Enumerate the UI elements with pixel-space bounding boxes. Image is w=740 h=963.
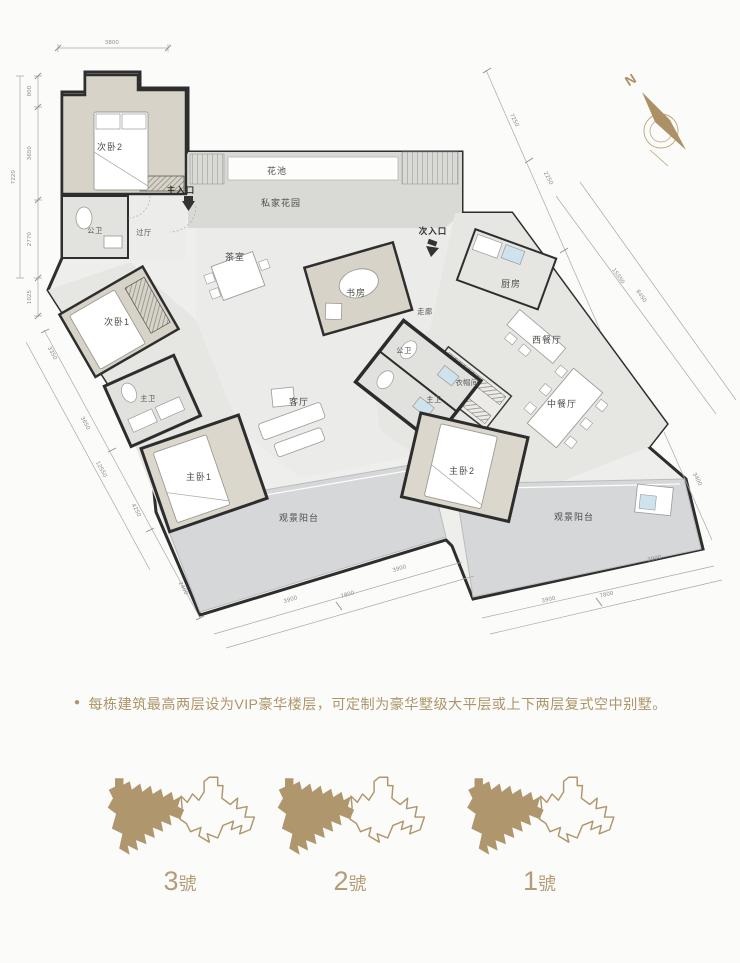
dim-bl-2: 3900: [392, 564, 407, 574]
pergola-left: [190, 154, 224, 184]
bullet-icon: ●: [74, 697, 80, 708]
dim-ll-0: 3350: [46, 346, 58, 361]
dim-right-side: 3400: [691, 472, 703, 487]
building-1-number: 1: [523, 866, 538, 896]
label-living: 客厅: [289, 396, 309, 407]
building-2-suffix: 號: [349, 874, 367, 894]
label-second-entrance: 次入口: [419, 226, 448, 236]
building-2-icon: [270, 772, 430, 860]
page: 3800 800 3650 2770 1025 7220 7250 2250 1…: [0, 0, 740, 963]
label-balcony-right: 观景阳台: [554, 511, 594, 522]
building-2-label[interactable]: 2號: [270, 866, 430, 897]
label-kitchen: 厨房: [501, 278, 521, 289]
pergola-right: [402, 152, 458, 184]
label-hallway: 过厅: [136, 228, 151, 237]
building-2-number: 2: [333, 866, 348, 896]
label-western-dining: 西餐厅: [532, 334, 562, 345]
label-flower-bed: 花池: [267, 165, 287, 176]
label-balcony-left: 观景阳台: [279, 512, 319, 523]
dim-ll-3: 4250: [130, 503, 142, 518]
building-3-suffix: 號: [179, 874, 197, 894]
label-bedroom1: 次卧1: [104, 316, 130, 327]
label-master-bedroom2: 主卧2: [449, 465, 475, 476]
building-1-label[interactable]: 1號: [452, 866, 627, 897]
compass-n-label: N: [622, 70, 639, 89]
dim-ll-2: 12550: [94, 460, 108, 478]
dim-rl-1: 8450: [634, 289, 647, 304]
dim-ur-1: 2250: [542, 171, 554, 186]
dim-bl-0: 3900: [283, 595, 298, 605]
dim-left-3: 1025: [27, 290, 33, 304]
label-main-entrance: 主入口: [167, 185, 196, 195]
dim-top: 3800: [105, 40, 119, 46]
dim-br-1: 7800: [599, 591, 614, 600]
label-private-garden: 私家花园: [261, 197, 301, 208]
label-cloakroom: 衣帽间: [455, 378, 478, 387]
label-tea-room: 茶室: [225, 251, 245, 262]
vip-note-text: 每栋建筑最高两层设为VIP豪华楼层，可定制为豪华墅级大平层或上下两层复式空中别墅…: [88, 694, 666, 714]
building-1-icon: [452, 772, 627, 860]
vip-note: ● 每栋建筑最高两层设为VIP豪华楼层，可定制为豪华墅级大平层或上下两层复式空中…: [74, 694, 714, 714]
floor-plan: 3800 800 3650 2770 1025 7220 7250 2250 1…: [0, 0, 740, 668]
dim-left-2: 2770: [27, 232, 33, 246]
balcony-tub: [635, 484, 674, 516]
label-bedroom2: 次卧2: [97, 141, 123, 152]
dim-left-0: 800: [27, 86, 33, 97]
building-3-number: 3: [163, 866, 178, 896]
dim-ll-1: 3650: [79, 416, 91, 431]
building-item-3[interactable]: 3號: [100, 772, 260, 860]
label-study: 书房: [346, 287, 366, 298]
building-1-suffix: 號: [538, 874, 556, 894]
building-item-2[interactable]: 2號: [270, 772, 430, 860]
label-master-bath2: 主卫: [426, 395, 441, 404]
dim-ur-0: 7250: [508, 113, 520, 128]
garden-band: [188, 152, 462, 228]
label-master-bath1: 主卫: [140, 394, 155, 403]
label-bath-upper: 公卫: [87, 226, 102, 235]
label-bath-mid: 公卫: [396, 346, 411, 355]
building-3-icon: [100, 772, 260, 860]
dim-left-total: 7220: [11, 170, 17, 184]
dim-rl-0: 15350: [610, 267, 625, 285]
label-chinese-dining: 中餐厅: [547, 398, 577, 409]
label-master-bedroom1: 主卧1: [186, 471, 212, 482]
flower-bed-box: [228, 157, 398, 180]
building-item-1[interactable]: 1號: [452, 772, 627, 860]
building-3-label[interactable]: 3號: [100, 866, 260, 897]
label-corridor: 走廊: [417, 307, 432, 316]
dim-bl-1: 7800: [340, 590, 355, 600]
compass: N: [622, 70, 686, 166]
dim-left-1: 3650: [27, 146, 33, 160]
